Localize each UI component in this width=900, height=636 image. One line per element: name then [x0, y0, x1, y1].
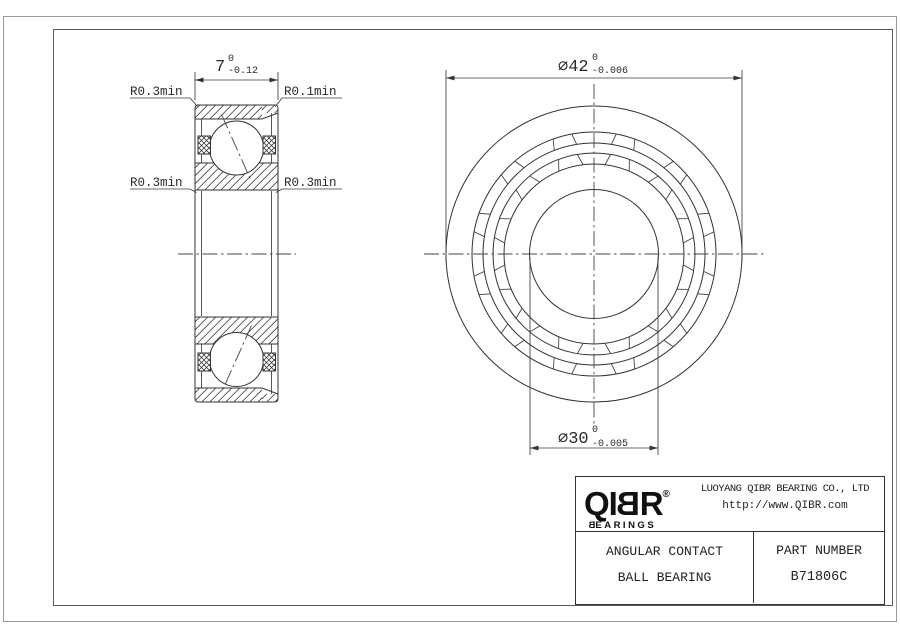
width-tol-upper: 0: [228, 54, 234, 65]
bore-tol-lower: -0.005: [592, 439, 628, 450]
product-name-cell: ANGULAR CONTACT BALL BEARING: [576, 532, 754, 603]
part-number-value: B71806C: [754, 570, 884, 585]
od-tol-upper: 0: [592, 53, 598, 64]
label-r-top-right: R0.1min: [284, 85, 337, 99]
part-number-cell: PART NUMBER B71806C: [754, 532, 884, 603]
part-number-label: PART NUMBER: [754, 543, 884, 558]
company-name: LUOYANG QIBR BEARING CO., LTD: [688, 483, 882, 495]
qibr-logo: QIBR® BEARINGS: [584, 480, 670, 531]
width-dimension: 7 0 -0.12: [195, 54, 278, 100]
od-value: ⌀42: [558, 58, 589, 77]
od-tol-lower: -0.006: [592, 66, 628, 77]
width-tol-lower: -0.12: [228, 66, 258, 77]
title-block-header-row: QIBR® BEARINGS LUOYANG QIBR BEARING CO.,…: [576, 477, 884, 532]
logo-wordmark: QIBR®: [584, 480, 670, 519]
company-cell: LUOYANG QIBR BEARING CO., LTD http://www…: [688, 483, 882, 512]
label-r-mid-right: R0.3min: [284, 176, 337, 190]
bore-value: ⌀30: [558, 430, 589, 449]
section-view: 7 0 -0.12 R0.3min R0.1min R0.3min R0.3mi…: [130, 54, 342, 402]
title-block: QIBR® BEARINGS LUOYANG QIBR BEARING CO.,…: [575, 476, 885, 605]
registered-mark-icon: ®: [663, 489, 670, 500]
bore-tol-upper: 0: [592, 425, 598, 436]
label-r-top-left: R0.3min: [130, 85, 183, 99]
label-r-mid-left: R0.3min: [130, 176, 183, 190]
title-block-bottom-row: ANGULAR CONTACT BALL BEARING PART NUMBER…: [576, 532, 884, 603]
front-view: ⌀42 0 -0.006 ⌀30 0 -0.005: [424, 53, 766, 455]
product-line2: BALL BEARING: [576, 570, 753, 585]
company-website: http://www.QIBR.com: [688, 500, 882, 512]
width-value: 7: [215, 58, 225, 77]
product-line1: ANGULAR CONTACT: [576, 544, 753, 559]
